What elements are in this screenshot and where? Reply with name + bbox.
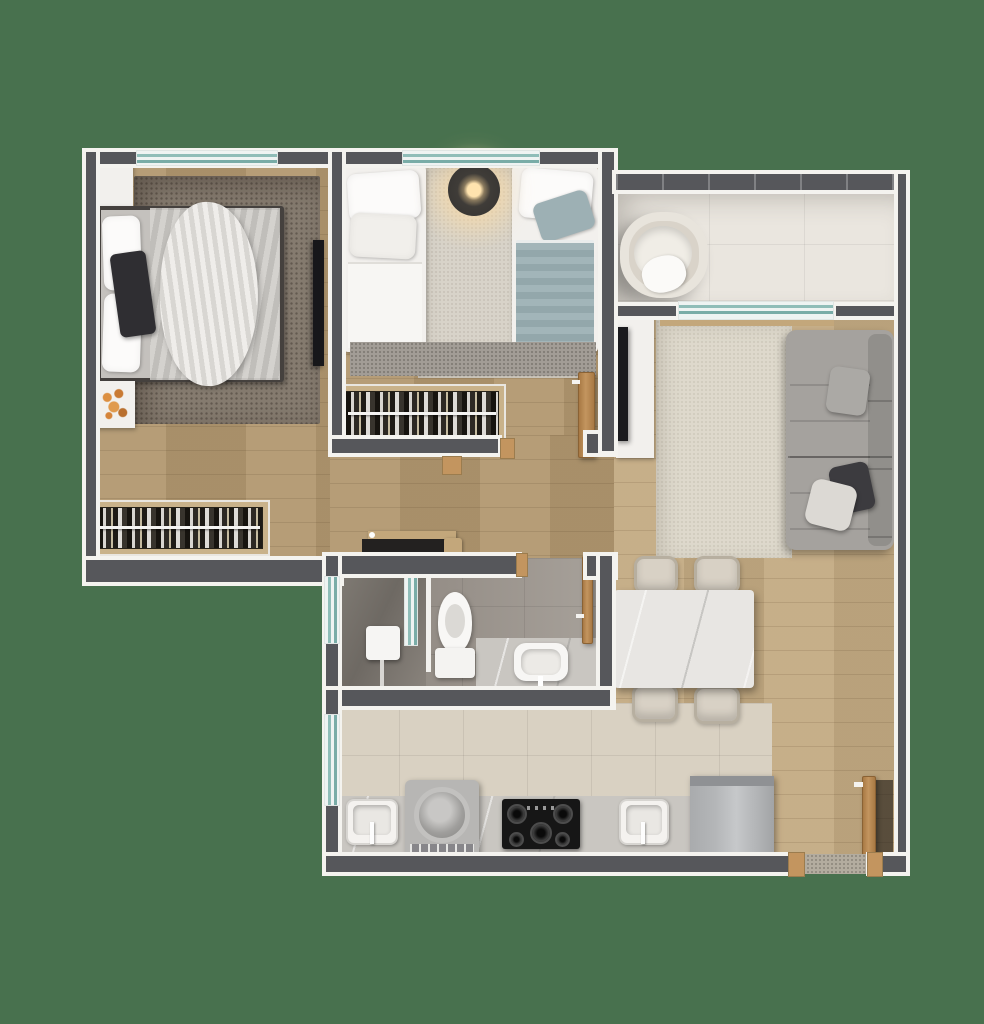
kitchen-window [324, 714, 340, 806]
second-open-wardrobe [340, 386, 504, 442]
master-window [136, 150, 278, 166]
bed-end-mat [350, 342, 596, 376]
bedroom2-window [402, 150, 540, 166]
toilet-tank [435, 648, 475, 678]
door-jamb [516, 553, 528, 577]
console-decor [369, 532, 375, 538]
living-rug [656, 320, 792, 558]
wall-bathroom-north [322, 552, 522, 578]
burner [553, 804, 573, 824]
pendant-lamp [448, 164, 500, 216]
door-threshold [442, 456, 462, 475]
entry-threshold-strip [802, 854, 870, 874]
burner-center [530, 822, 552, 844]
washer-drum [414, 787, 470, 843]
balcony-sliding-glass-door [678, 301, 834, 320]
dining-chair [694, 556, 740, 594]
kitchen-faucet [641, 822, 645, 844]
wall-south [322, 852, 804, 876]
refrigerator-top [690, 776, 774, 786]
cooktop-knobs [527, 806, 555, 810]
orange-flowers [99, 386, 132, 424]
burner [507, 804, 527, 824]
toilet-seat [445, 604, 465, 638]
wall-east [894, 170, 910, 872]
sink-basin [521, 649, 561, 675]
sofa-module-divider [788, 456, 892, 458]
wall-bedroom2-south [328, 435, 502, 457]
laundry-faucet [370, 822, 374, 844]
burner [555, 832, 570, 847]
master-tv [313, 240, 324, 366]
railing-glass-stripes [616, 174, 894, 190]
glass-panel-edge [426, 576, 431, 672]
door-handle [576, 614, 584, 618]
dining-chair [632, 684, 678, 722]
wall-bedroom-divider [328, 148, 346, 457]
balcony-railing [612, 170, 898, 194]
bed-pillow [349, 212, 417, 259]
wall-sliding-door-left [614, 302, 680, 320]
door-handle [854, 782, 863, 787]
refrigerator [690, 776, 774, 858]
dining-chair [694, 686, 740, 724]
bathroom-window [324, 576, 340, 644]
hall-console-top [368, 531, 456, 539]
door-jamb [788, 852, 805, 877]
floor-plan-canvas [0, 0, 984, 1024]
sliding-door-sill [660, 320, 834, 326]
shower-head [366, 626, 400, 660]
wall-west [82, 148, 100, 586]
door-handle [572, 380, 580, 384]
dining-table [614, 590, 754, 688]
wall-kitchen-north [322, 686, 614, 710]
door-jamb [500, 438, 515, 459]
shower-stem [380, 660, 384, 688]
sofa-pillow-grey [825, 365, 871, 416]
teal-duvet [516, 240, 594, 346]
bed-sheet [348, 262, 422, 348]
door-jamb [867, 852, 883, 877]
shower-glass-partition [404, 570, 418, 646]
dining-chair [634, 556, 678, 594]
master-open-wardrobe [92, 502, 268, 554]
sofa-backrest [868, 334, 892, 546]
burner [509, 832, 524, 847]
wardrobe-rail [100, 526, 259, 529]
wall-master-south [82, 556, 344, 586]
wall-sliding-door-right [832, 302, 898, 320]
wardrobe-rail [348, 412, 496, 415]
door-opening-shadow [876, 780, 893, 854]
